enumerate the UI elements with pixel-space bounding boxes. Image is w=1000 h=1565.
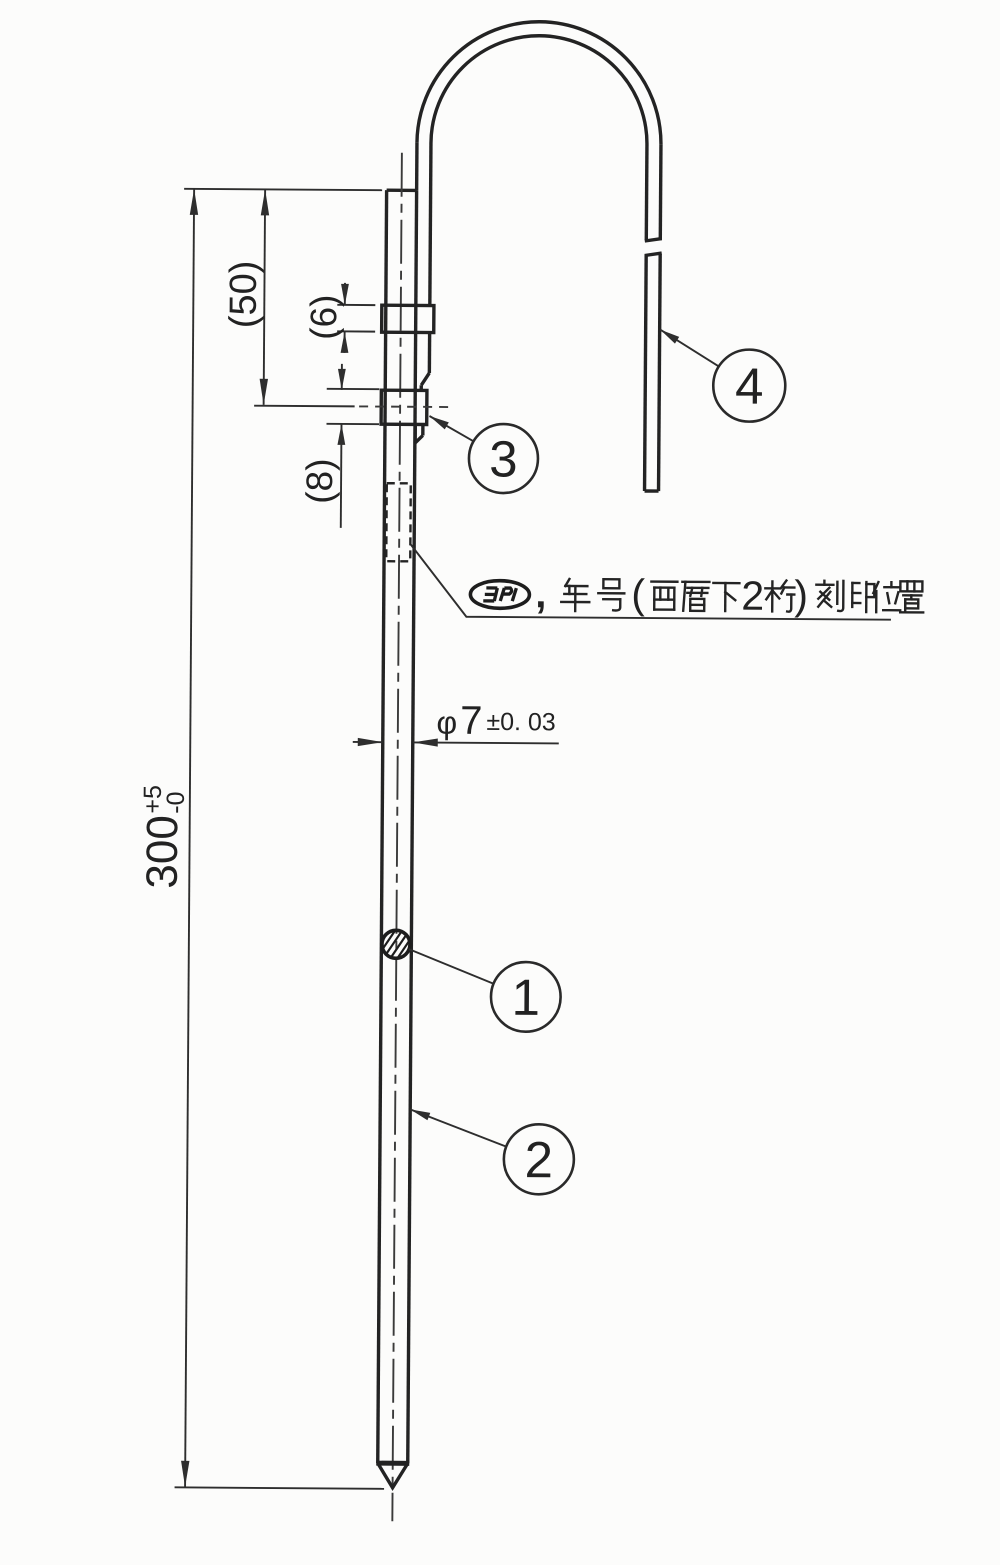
svg-text:3: 3 bbox=[489, 430, 518, 487]
svg-text:1: 1 bbox=[511, 969, 540, 1026]
svg-text:φ7±0. 03: φ7±0. 03 bbox=[436, 699, 556, 744]
svg-text:(50): (50) bbox=[223, 260, 265, 328]
svg-text:): ) bbox=[794, 572, 808, 618]
svg-text:2: 2 bbox=[741, 573, 764, 619]
svg-text:2: 2 bbox=[524, 1131, 553, 1188]
svg-text:,: , bbox=[535, 572, 546, 616]
svg-text:(6): (6) bbox=[303, 294, 344, 340]
svg-text:300: 300 bbox=[138, 815, 188, 889]
svg-text:4: 4 bbox=[735, 358, 764, 415]
svg-text:(: ( bbox=[631, 571, 645, 617]
svg-text:-0: -0 bbox=[162, 791, 190, 813]
svg-text:(8): (8) bbox=[299, 458, 340, 504]
